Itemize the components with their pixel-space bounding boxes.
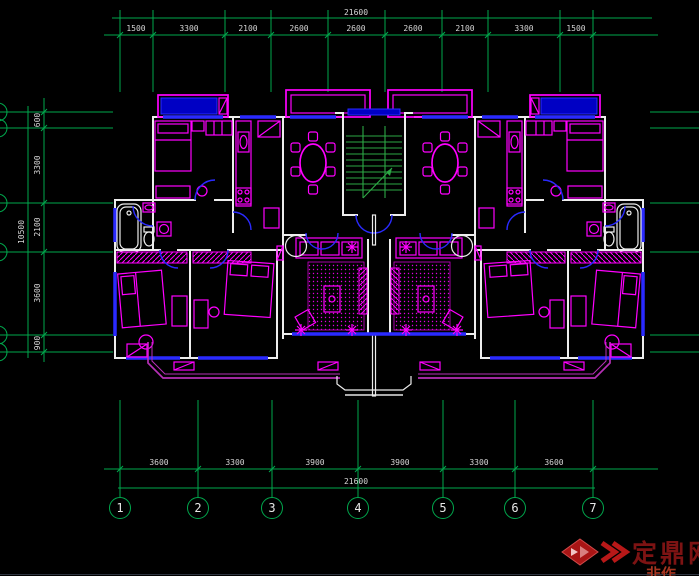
kitchen-furniture	[236, 121, 280, 228]
dim-label: 3600	[33, 283, 42, 302]
dim-label: 3600	[149, 458, 168, 467]
party-wall	[373, 215, 376, 245]
dim-label: 3300	[33, 155, 42, 174]
desk	[194, 300, 208, 328]
dim-label: 900	[33, 336, 42, 351]
dim-label: 10500	[17, 220, 26, 244]
grid-bubble-label: 4	[354, 501, 361, 515]
bedroom-bottom-left-furniture	[117, 252, 187, 349]
dim-label: 3300	[225, 458, 244, 467]
dim-label: 3900	[390, 458, 409, 467]
apartment-unit-right	[388, 90, 643, 378]
dresser	[156, 186, 190, 198]
watermark-partial-text: 非作	[646, 565, 676, 576]
bed	[155, 121, 191, 171]
nightstand	[192, 121, 204, 131]
cad-viewport: 21600 1500 3300 2100 2600 2600 2600 2100…	[0, 0, 699, 576]
chair	[309, 185, 318, 194]
apartment-unit-left	[115, 90, 370, 378]
grid-bubble-label: 6	[511, 501, 518, 515]
right-grid-stubs	[650, 112, 699, 352]
chair	[326, 143, 335, 152]
chair	[291, 143, 300, 152]
dim-label: 3600	[544, 458, 563, 467]
bottom-dimension-lines	[104, 469, 658, 488]
dining-table	[291, 132, 335, 194]
counter	[264, 208, 279, 228]
balcony-bottom	[127, 342, 340, 378]
grid-bubble-label: 7	[589, 501, 596, 515]
top-grid-ticks	[120, 10, 593, 92]
living-room-furniture	[295, 238, 367, 336]
entry-door-swings	[356, 215, 392, 233]
dim-label: 3900	[305, 458, 324, 467]
dim-label: 2600	[403, 24, 422, 33]
stair-steps	[346, 136, 402, 190]
balcony-top-outer	[158, 95, 228, 117]
wall-segment	[336, 113, 412, 215]
party-wall	[373, 334, 376, 396]
chair	[309, 132, 318, 141]
dim-label: 3300	[179, 24, 198, 33]
top-dimensions: 21600 1500 3300 2100 2600 2600 2600 2100…	[126, 8, 585, 33]
stair-window	[348, 109, 400, 115]
dim-label: 21600	[344, 477, 368, 486]
bedroom-top-furniture	[155, 121, 232, 198]
row-bubbles-cut	[0, 103, 7, 361]
dim-label: 600	[33, 113, 42, 128]
wardrobe	[117, 252, 187, 263]
chair	[326, 167, 335, 176]
column-bubbles: 1 2 3 4 5 6 7	[110, 498, 604, 519]
dim-label: 21600	[344, 8, 368, 17]
dim-label: 2600	[346, 24, 365, 33]
dim-label: 2100	[455, 24, 474, 33]
stool	[139, 335, 153, 349]
grid-bubble-label: 1	[116, 501, 123, 515]
chair	[291, 167, 300, 176]
dim-label: 1500	[126, 24, 145, 33]
tv-cabinet	[359, 268, 367, 314]
bedroom-bottom-middle-furniture	[193, 246, 283, 328]
watermark-site-name: 定鼎网	[632, 539, 699, 568]
dim-label: 2100	[238, 24, 257, 33]
dim-label: 2100	[33, 217, 42, 236]
floor-plan-drawing: 21600 1500 3300 2100 2600 2600 2600 2100…	[0, 0, 699, 576]
stool	[209, 307, 219, 317]
bed	[118, 270, 167, 328]
grid-bubble-label: 3	[268, 501, 275, 515]
rug	[308, 262, 364, 330]
desk	[172, 296, 187, 326]
grid-bubble-label: 5	[439, 501, 446, 515]
grid-bubble-label: 2	[194, 501, 201, 515]
bed	[224, 260, 274, 317]
dim-label: 3300	[514, 24, 533, 33]
dingding-logo-icon	[562, 539, 626, 565]
bottom-dimensions: 3600 3300 3900 3900 3300 3600 21600	[149, 458, 563, 486]
dim-label: 2600	[289, 24, 308, 33]
dim-label: 1500	[566, 24, 585, 33]
dim-label: 3300	[469, 458, 488, 467]
watermark: 定鼎网 非作	[562, 539, 699, 576]
cabinet	[206, 121, 232, 135]
left-dimensions: 10500 600 3300 2100 3600 900	[17, 113, 42, 351]
bathroom-fixtures	[117, 203, 171, 252]
